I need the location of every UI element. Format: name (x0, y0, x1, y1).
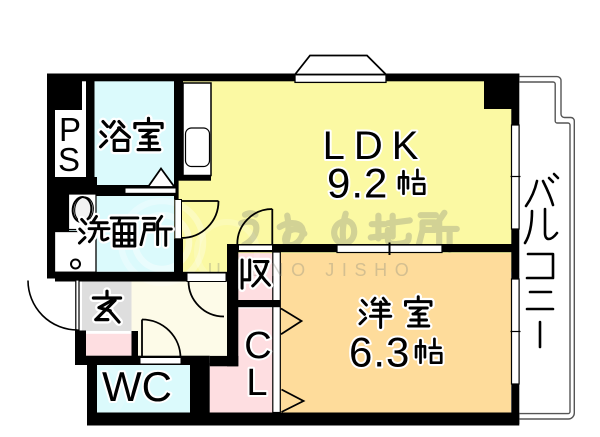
svg-text:S: S (58, 141, 80, 178)
svg-text:L: L (246, 362, 267, 404)
svg-text:C: C (244, 325, 271, 367)
svg-text:9.2: 9.2 (327, 160, 388, 207)
svg-text:6.3: 6.3 (349, 329, 410, 376)
svg-text:WC: WC (102, 363, 172, 410)
